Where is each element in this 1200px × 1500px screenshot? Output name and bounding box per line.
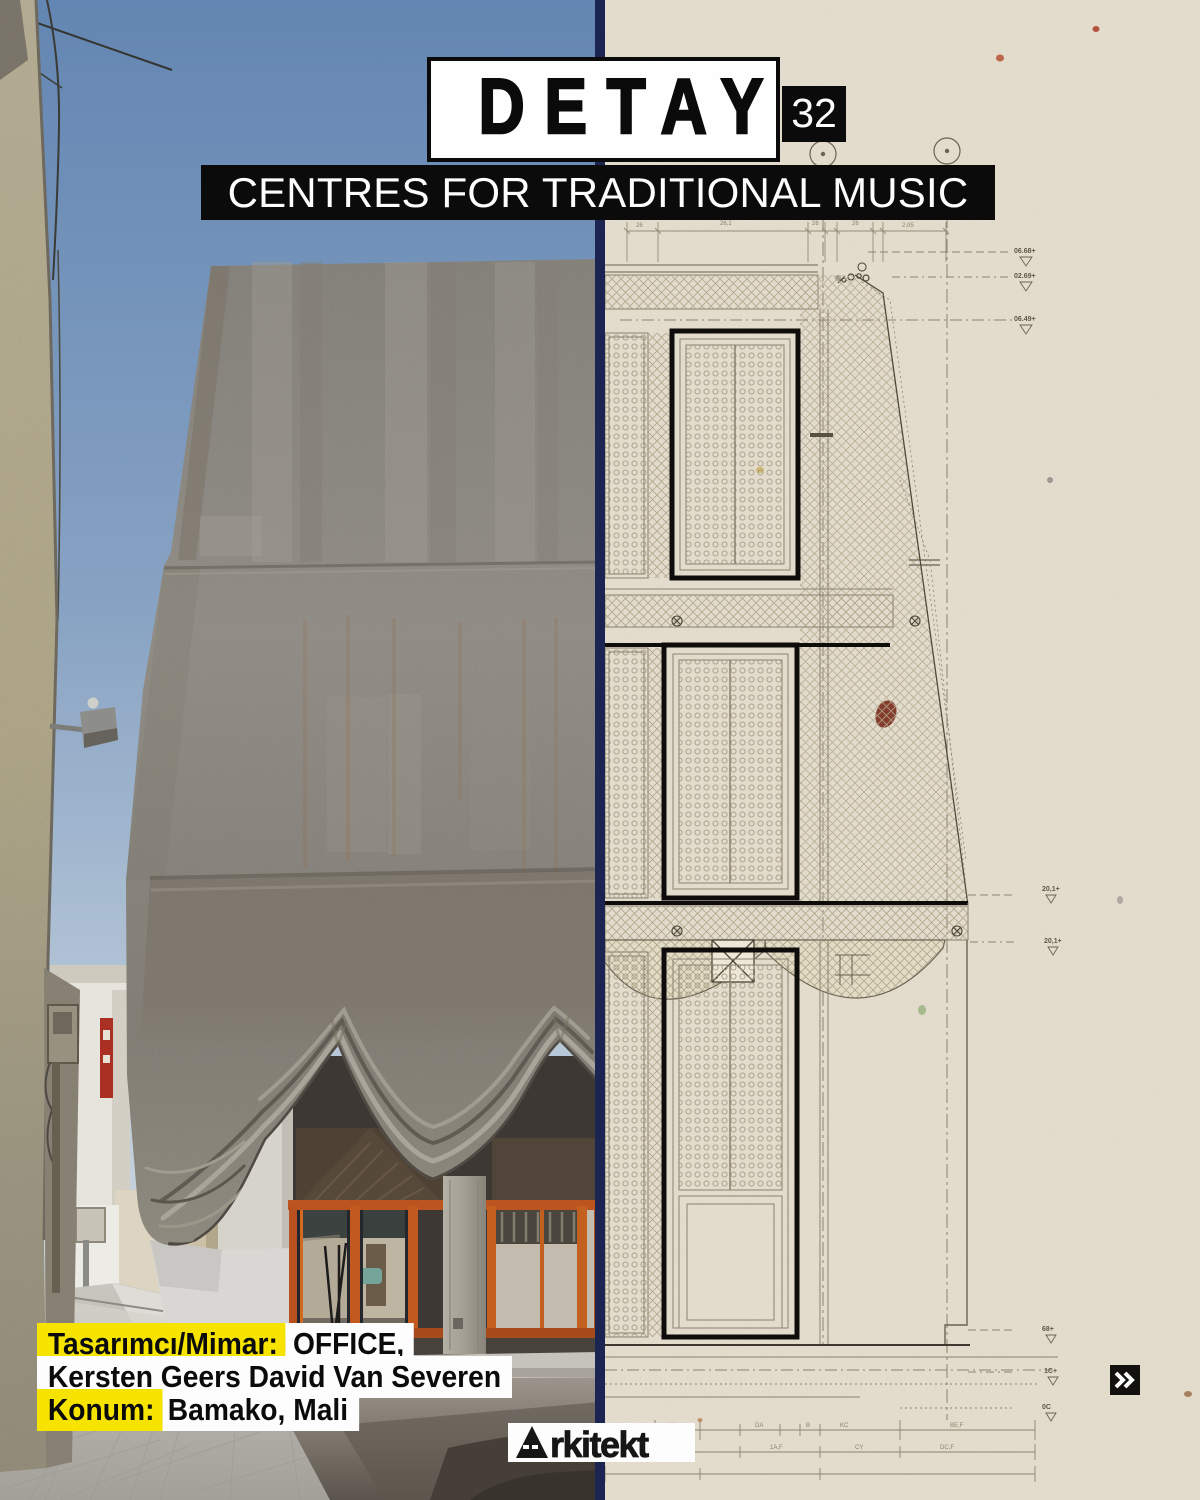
svg-text:26: 26	[852, 221, 859, 227]
svg-text:26: 26	[636, 223, 643, 229]
svg-text:1C+: 1C+	[1044, 1368, 1057, 1375]
svg-text:1A,F: 1A,F	[770, 1445, 783, 1451]
svg-text:B: B	[806, 1423, 810, 1429]
svg-text:rkitekt: rkitekt	[550, 1424, 649, 1462]
svg-text:06.49+: 06.49+	[1014, 316, 1036, 323]
svg-text:DC,F: DC,F	[940, 1445, 954, 1451]
svg-text:06.68+: 06.68+	[1014, 248, 1036, 255]
svg-text:0C: 0C	[1042, 1404, 1051, 1411]
svg-text:BE,F: BE,F	[950, 1423, 964, 1429]
svg-text:26,1: 26,1	[720, 221, 732, 227]
svg-text:20,1+: 20,1+	[1042, 886, 1060, 893]
svg-text:DA: DA	[755, 1423, 763, 1429]
svg-text:26: 26	[812, 221, 819, 227]
svg-text:KC: KC	[840, 1423, 849, 1429]
svg-text:2,05: 2,05	[902, 223, 914, 229]
svg-text:CY: CY	[855, 1445, 863, 1451]
svg-text:68+: 68+	[1042, 1326, 1054, 1333]
svg-text:20,1+: 20,1+	[1044, 938, 1062, 945]
svg-text:02.69+: 02.69+	[1014, 273, 1036, 280]
